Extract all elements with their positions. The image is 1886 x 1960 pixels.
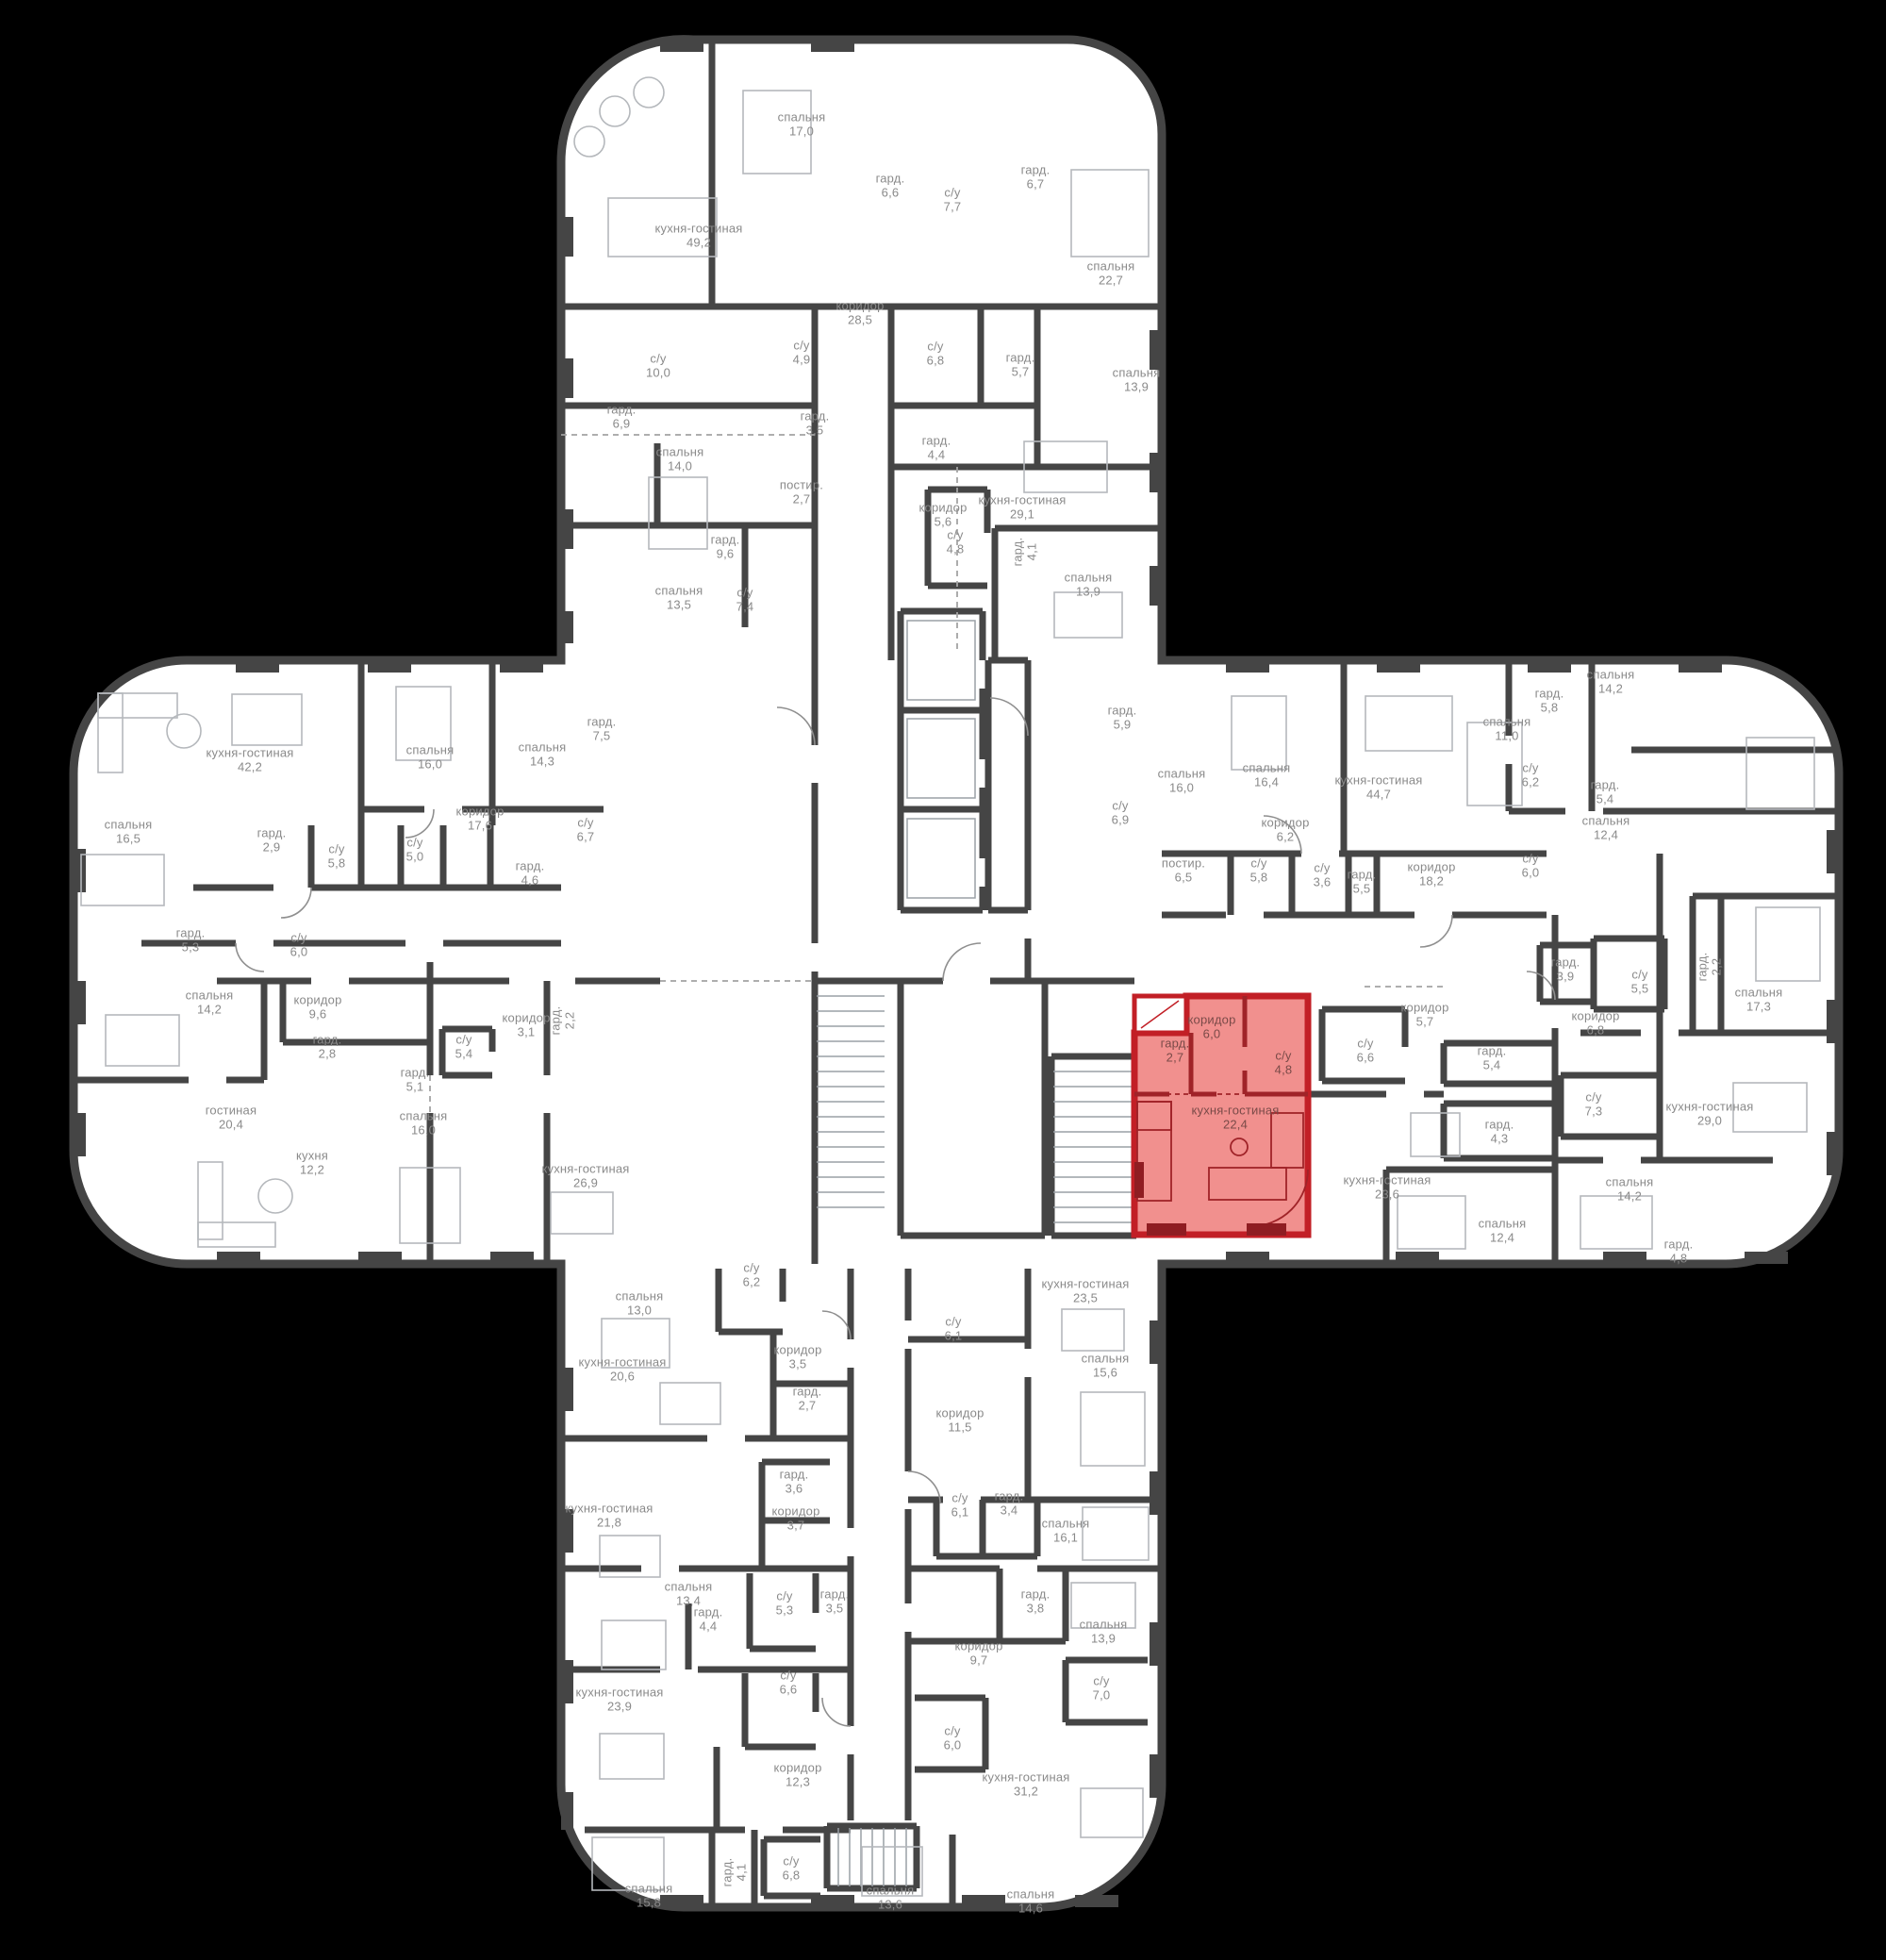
floor-plan-screenshot: спальня17,0кухня-гостиная49,2гард.6,6с/у… — [0, 0, 1886, 1960]
building-footprint — [74, 40, 1839, 1907]
selected-apartment[interactable] — [1134, 996, 1308, 1236]
floor-plan-svg — [0, 0, 1886, 1960]
